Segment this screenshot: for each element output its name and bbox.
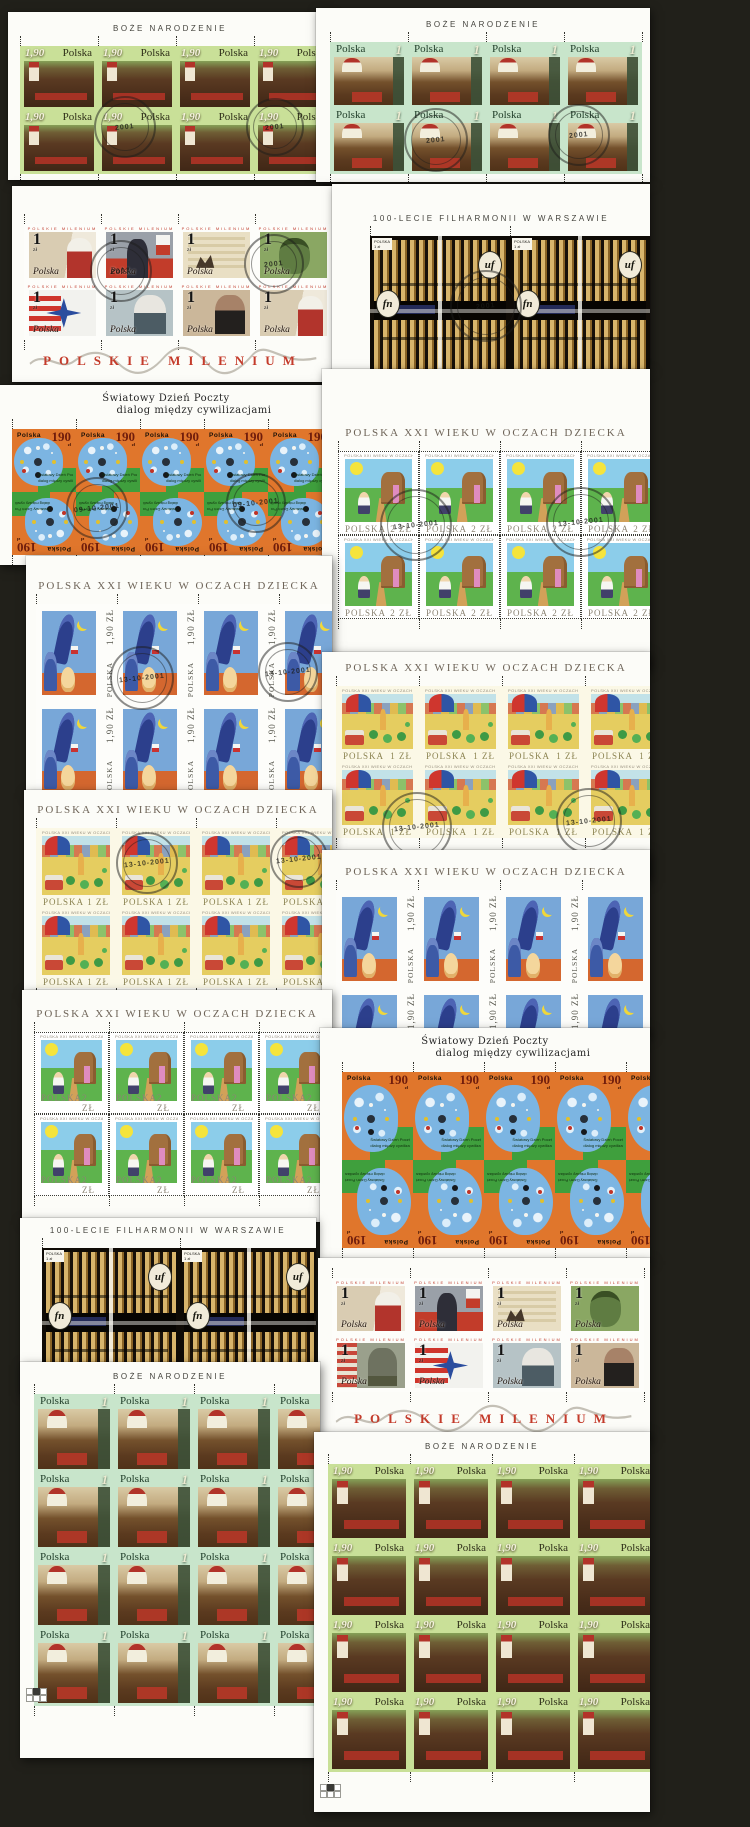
sheet-title: POLSKA XXI WIEKU W OCZACH DZIECKA (26, 578, 332, 594)
stamp-label-row: POLSKA2 ZŁ (116, 1093, 177, 1113)
country-label: POLSKA (426, 827, 467, 837)
denomination-label: 1 ZŁ (473, 751, 495, 761)
nativity-painting (568, 123, 638, 171)
flag-shape (71, 744, 78, 752)
blue-child-shape (344, 938, 357, 977)
stamp-x2: POLSKA XXI WIEKU W OCZACH DZIECKAPOLSKA2… (500, 535, 581, 619)
tree-column-shape (258, 1565, 270, 1625)
stamp-bn190: 1,90Polska (328, 1541, 410, 1618)
child-face-shape (526, 953, 540, 978)
caption-line1: Światowy Dzień Poczty (512, 1137, 552, 1143)
church-tower-shape (498, 124, 518, 138)
child-face-shape (444, 953, 458, 978)
stamp-mil: POLSKIE MILENIUM1złPolska (410, 1335, 488, 1392)
perforation-tick (42, 1238, 180, 1248)
sheet-milenium-right: POLSKIE MILENIUM1złPolskaPOLSKIE MILENIU… (318, 1258, 650, 1440)
flag-shape (314, 646, 321, 654)
child-face-shape (362, 953, 376, 978)
country-label: Polska (497, 1320, 523, 1330)
perforation-tick (198, 594, 279, 604)
path-shape (619, 582, 630, 606)
red-table-shape (430, 92, 459, 102)
red-table-shape (426, 1751, 481, 1760)
caption-line1: Światowy Dzień Poczty (207, 506, 243, 512)
church-tower-shape (501, 1635, 512, 1659)
denomination-label: 1 (474, 42, 481, 58)
stamp-micro-caption: POLSKIE MILENIUM (566, 1337, 644, 1342)
church-tower-shape (342, 124, 362, 138)
child-face-shape (223, 765, 237, 790)
perforation-tick (176, 174, 254, 180)
denomination-value: 1 (264, 292, 272, 305)
perforation-tick (486, 174, 564, 182)
red-table-shape (586, 92, 615, 102)
perforation-tick (419, 441, 500, 451)
perforation-tick (36, 818, 116, 828)
denomination-label: 1zł (187, 292, 195, 310)
denomination-label: 1 ZŁ (87, 897, 109, 907)
stamp-micro-caption: Światowy Dzień Pocztydialog między cywil… (370, 1137, 410, 1149)
tree-column-shape (178, 1565, 190, 1625)
blue-child-shape (287, 652, 300, 691)
stamp-micro-caption: Światowy Dzień Pocztydialog między cywil… (15, 500, 51, 512)
stamp-grid: POLSKA XXI WIEKU W OCZACH DZIECKAPOLSKA1… (36, 828, 332, 988)
country-label: Polska (336, 43, 365, 55)
perforation-tick (20, 36, 98, 46)
caption-line2: dialog między cywilizacjami (271, 500, 307, 506)
denomination-label: 190zł (347, 1230, 367, 1248)
denomination-label: 1,90 ZŁ (488, 895, 498, 931)
country-label: POLSKA (507, 524, 548, 534)
stamp-label-row: POLSKA1 ZŁ (592, 751, 650, 761)
denomination-label: 1,90 (333, 1465, 352, 1477)
giraffe-shape (380, 709, 386, 730)
stamp-sw: Polska190złŚwiatowy Dzień Pocztydialog m… (140, 492, 204, 555)
sheet-milenium-left: POLSKIE MILENIUM1złPolskaPOLSKIE MILENIU… (12, 186, 334, 382)
perforation-ticks (36, 818, 332, 828)
child-drawing-town (508, 694, 579, 749)
corner-label: POLSKA1 zł (44, 1250, 64, 1262)
red-bus-shape (428, 730, 447, 744)
denomination-label: 2 ZŁ (471, 524, 493, 534)
stamp-micro-caption: POLSKIE MILENIUM (332, 1280, 410, 1285)
country-label: Polska (560, 1075, 584, 1082)
denomination-label: 1zł (419, 1288, 427, 1306)
caption-line2: dialog między cywilizacjami (79, 500, 115, 506)
currency-label: zł (497, 1302, 505, 1306)
stamp-x2: POLSKA XXI WIEKU W OCZACH DZIECKAPOLSKA2… (109, 1032, 184, 1114)
country-label: POLSKA (406, 948, 415, 983)
nativity-painting (496, 1556, 570, 1615)
child-drawing-rocket (123, 709, 177, 793)
denomination-label: 190zł (116, 430, 136, 448)
denomination-label: 1,90 (579, 1465, 598, 1477)
caption-line1: Światowy Dzień Poczty (143, 506, 179, 512)
stamp-micro-caption: POLSKIE MILENIUM (101, 226, 178, 231)
denomination-label: 1 (102, 1550, 109, 1566)
denomination-label: 2 ZŁ (552, 524, 574, 534)
perforation-tick (626, 1248, 650, 1258)
country-label: Polska (239, 545, 263, 552)
perforation-tick (117, 594, 198, 604)
denomination-label: 190zł (52, 430, 72, 448)
country-label: Polska (40, 1551, 69, 1563)
stamp-bn1: Polska1 (114, 1394, 194, 1472)
pink-door-shape (234, 1066, 239, 1083)
stamp-label-row: POLSKA2 ZŁ (191, 1093, 252, 1113)
stamp-x2: POLSKA XXI WIEKU W OCZACH DZIECKAPOLSKA2… (500, 451, 581, 535)
stamp-sw: Polska190złŚwiatowy Dzień Pocztydialog m… (12, 429, 76, 492)
stamp-micro-caption: Światowy Dzień Pocztydialog między cywil… (629, 1171, 650, 1183)
country-label: Polska (492, 109, 521, 121)
pink-door-shape (474, 485, 480, 503)
country-label: POLSKA (123, 897, 164, 907)
caption-line2: dialog między cywilizacjami (512, 1143, 552, 1149)
caption-line1: Światowy Dzień Poczty (102, 472, 138, 478)
denomination-label: 1 ZŁ (247, 897, 269, 907)
country-label: Polska (200, 1629, 229, 1641)
giraffe-shape (546, 785, 552, 806)
stamp-mil: POLSKIE MILENIUM1złPolska (488, 1278, 566, 1335)
path-shape (457, 582, 468, 606)
country-label: POLSKA (588, 524, 629, 534)
nativity-painting (496, 1633, 570, 1692)
denomination-label: 1 ZŁ (247, 977, 269, 987)
church-tower-shape (47, 1644, 67, 1662)
country-label: POLSKA (203, 897, 244, 907)
stamp-micro-caption: POLSKIE MILENIUM (24, 284, 101, 289)
stamp-x2: POLSKA XXI WIEKU W OCZACH DZIECKAPOLSKA2… (184, 1032, 259, 1114)
child-figure-shape (128, 1072, 138, 1094)
pink-door-shape (393, 485, 399, 503)
registration-color-block (320, 1784, 341, 1798)
stamp-grid: POLSKIE MILENIUM1złPolskaPOLSKIE MILENIU… (24, 224, 334, 340)
caption-line1: Światowy Dzień Poczty (79, 506, 115, 512)
path-shape (457, 498, 468, 522)
stamp-micro-caption: POLSKIE MILENIUM (410, 1337, 488, 1342)
denomination-value: 1 (497, 1345, 505, 1358)
denomination-label: 2 ZŁ (390, 608, 412, 618)
stamp-micro-caption: POLSKIE MILENIUM (410, 1280, 488, 1285)
corner-label: POLSKA1 zł (512, 238, 532, 250)
country-label: Polska (375, 1696, 404, 1708)
stamp-collage: BOŻE NARODZENIE1,90Polska1,90Polska1,90P… (0, 0, 750, 1827)
church-tower-shape (501, 1712, 512, 1736)
red-bus-shape (511, 730, 530, 744)
pink-door-shape (636, 569, 642, 587)
giraffe-shape (158, 853, 164, 875)
stamp-label-row: POLSKA2 ZŁ (191, 1175, 252, 1195)
stamp-micro-caption: Światowy Dzień Pocztydialog między cywil… (79, 500, 115, 512)
child-figure-shape (439, 492, 450, 515)
stamp-label-row: POLSKA2 ZŁ (507, 524, 574, 534)
trees-shape (480, 732, 489, 741)
red-table-shape (344, 1674, 399, 1683)
red-table-shape (217, 1531, 247, 1543)
philharmonic-monogram-left: fn (376, 290, 400, 318)
stamp-bn1: Polska1 (564, 42, 642, 108)
country-label: Polska (457, 1542, 486, 1554)
flag-shape (71, 646, 78, 654)
stamp-bn190: 1,90Polska (98, 46, 176, 110)
stamp-micro-caption: POLSKA XXI WIEKU W OCZACH DZIECKA (506, 537, 575, 542)
country-label: Polska (17, 432, 41, 439)
caption-line2: dialog między cywilizacjami (345, 1171, 385, 1177)
blue-child-shape (508, 938, 521, 977)
tree-column-shape (258, 1409, 270, 1469)
perforation-tick (500, 880, 582, 890)
perforation-tick (410, 1772, 492, 1782)
child-drawing-rocket (506, 897, 561, 981)
stamp-micro-caption: POLSKA XXI WIEKU W OCZACH DZIECKA (40, 1034, 103, 1039)
currency-label: zł (419, 1302, 427, 1306)
country-label: POLSKA (588, 608, 629, 618)
stamp-micro-caption: POLSKIE MILENIUM (332, 1337, 410, 1342)
denomination-label: 190zł (180, 430, 200, 448)
country-label: Polska (209, 432, 233, 439)
nativity-painting (118, 1409, 190, 1469)
child-drawing-town (591, 770, 650, 825)
stamp-bn190: 1,90Polska (328, 1695, 410, 1772)
blue-child-shape (44, 652, 57, 691)
stamp-label-row: POLSKA2 ZŁ (41, 1175, 102, 1195)
red-bus-shape (511, 806, 530, 820)
flag-shape (454, 932, 461, 940)
country-label: Polska (110, 325, 136, 335)
denomination-label: 1,90 (259, 111, 278, 123)
giraffe-shape (629, 709, 635, 730)
denomination-label: 1 ZŁ (639, 827, 650, 837)
perforation-ticks (20, 174, 332, 180)
country-label: POLSKA (191, 1175, 232, 1195)
stamp-micro-caption: POLSKA XXI WIEKU W OCZACH DZIECKA (425, 764, 496, 769)
country-label: Polska (570, 109, 599, 121)
caption-line1: Światowy Dzień Poczty (558, 1177, 598, 1183)
red-table-shape (508, 92, 537, 102)
stamp-x1: POLSKA XXI WIEKU W OCZACH DZIECKAPOLSKA1… (585, 686, 650, 762)
perforation-tick (510, 226, 650, 236)
perforation-tick (410, 1454, 492, 1464)
country-label: Polska (280, 1395, 309, 1407)
stamp-bn190: 1,90Polska (574, 1464, 650, 1541)
stamp-micro-caption: POLSKIE MILENIUM (178, 284, 255, 289)
child-drawing-house (345, 459, 412, 522)
nativity-painting (414, 1556, 488, 1615)
denomination-label: 1,90 ZŁ (186, 609, 196, 645)
perforation-tick (34, 1196, 109, 1206)
church-tower-shape (342, 58, 362, 72)
perforation-tick (184, 1196, 259, 1206)
church-tower-shape (337, 1558, 348, 1582)
denomination-label: 1zł (33, 292, 41, 310)
trees-shape (94, 878, 103, 887)
caption-line1: Światowy Dzień Poczty (15, 506, 51, 512)
path-shape (619, 498, 630, 522)
country-label: Polska (570, 43, 599, 55)
stamp-label-row: POLSKA2 ZŁ (266, 1093, 327, 1113)
country-label: Polska (539, 1696, 568, 1708)
denomination-label: 1 (182, 1628, 189, 1644)
country-label: POLSKA (283, 977, 324, 987)
stamp-mil: POLSKIE MILENIUM1złPolska (101, 282, 178, 340)
sheet-children-190-left: POLSKA XXI WIEKU W OCZACH DZIECKA1,90 ZŁ… (26, 556, 332, 796)
nativity-painting (490, 57, 560, 105)
stamp-rk: 1,90 ZŁPOLSKA (117, 604, 198, 702)
stamp-grid: POLSKA XXI WIEKU W OCZACH DZIECKAPOLSKA1… (336, 686, 650, 838)
stamp-sw: Polska190złŚwiatowy Dzień Pocztydialog m… (555, 1072, 626, 1160)
stamp-micro-caption: POLSKIE MILENIUM (178, 226, 255, 231)
nativity-painting (102, 125, 172, 171)
perforation-tick (492, 1772, 574, 1782)
nativity-painting (578, 1479, 650, 1538)
denomination-value: 190 (347, 1234, 367, 1247)
stamp-label-row: POLSKA2 ZŁ (426, 608, 493, 618)
sheet-title: POLSKA XXI WIEKU W OCZACH DZIECKA (322, 425, 650, 441)
pink-door-shape (309, 1066, 314, 1083)
giraffe-shape (158, 933, 164, 955)
denomination-label: 1 zł (514, 244, 530, 249)
country-label: Polska (264, 267, 290, 277)
child-drawing-rocket (342, 897, 397, 981)
nativity-painting (578, 1710, 650, 1769)
child-drawing-town (122, 836, 190, 895)
currency-label: zł (110, 248, 118, 252)
country-label: Polska (120, 1473, 149, 1485)
country-label: Polska (497, 1377, 523, 1387)
perforation-ticks (12, 419, 332, 429)
country-label: Polska (280, 1551, 309, 1563)
country-label: Polska (418, 1075, 442, 1082)
denomination-value: 1 (264, 234, 272, 247)
perforation-tick (279, 594, 332, 604)
stamp-bn190: 1,90Polska (492, 1618, 574, 1695)
path-shape (376, 582, 387, 606)
perforation-tick (488, 1392, 566, 1402)
stamp-rk: 1,90 ZŁPOLSKA (418, 890, 500, 988)
church-tower-shape (583, 1712, 594, 1736)
denomination-label: 1 (182, 1472, 189, 1488)
country-label: Polska (539, 1542, 568, 1554)
stamp-bn190: 1,90Polska (20, 110, 98, 174)
country-label: Polska (621, 1465, 650, 1477)
stamp-rk: 1,90 ZŁPOLSKA (336, 890, 418, 988)
stamp-mil: POLSKIE MILENIUM1złPolska (178, 282, 255, 340)
church-tower-shape (287, 1566, 307, 1584)
stamp-micro-caption: POLSKA XXI WIEKU W OCZACH DZIECKA (190, 1034, 253, 1039)
nativity-painting (180, 61, 250, 107)
stamp-x1: POLSKA XXI WIEKU W OCZACH DZIECKAPOLSKA1… (36, 828, 116, 908)
denomination-value: 1 (497, 1288, 505, 1301)
nativity-painting (414, 1479, 488, 1538)
child-drawing-rocket (42, 709, 96, 793)
perforation-tick (109, 1196, 184, 1206)
country-label: POLSKA (41, 1093, 82, 1113)
tree-column-shape (178, 1487, 190, 1547)
denomination-value: 1 (187, 234, 195, 247)
country-label: POLSKA (186, 662, 195, 697)
stamp-bn190: 1,90Polska (492, 1695, 574, 1772)
red-table-shape (217, 1609, 247, 1621)
stamp-bn1: Polska1 (408, 42, 486, 108)
country-label: Polska (110, 267, 136, 277)
stamp-micro-caption: POLSKA XXI WIEKU W OCZACH DZIECKA (508, 764, 579, 769)
trees-shape (94, 958, 103, 967)
child-drawing-house (426, 543, 493, 606)
stamp-sw: Polska190złŚwiatowy Dzień Pocztydialog m… (484, 1160, 555, 1248)
stamp-x1: POLSKA XXI WIEKU W OCZACH DZIECKAPOLSKA1… (502, 686, 585, 762)
country-label: Polska (526, 1238, 550, 1245)
nativity-painting (24, 125, 94, 171)
child-face-shape (608, 953, 622, 978)
denomination-label: 190zł (418, 1230, 438, 1248)
denomination-label: 2 ZŁ (232, 1093, 252, 1113)
philharmonic-monogram-right: uf (286, 1263, 310, 1291)
tree-column-shape (258, 1487, 270, 1547)
stamp-x2: POLSKA XXI WIEKU W OCZACH DZIECKAPOLSKA2… (34, 1114, 109, 1196)
sheet-world-post-day-left: Światowy Dzień Pocztydialog między cywil… (0, 385, 332, 565)
denomination-value: 190 (631, 1234, 650, 1247)
giraffe-shape (238, 853, 244, 875)
denomination-value: 190 (81, 541, 101, 554)
child-drawing-town (122, 916, 190, 975)
stamp-micro-caption: Światowy Dzień Pocztydialog między cywil… (102, 472, 138, 484)
stamp-label-row: POLSKA2 ZŁ (345, 608, 412, 618)
red-table-shape (508, 1520, 563, 1529)
denomination-value: 1 (33, 234, 41, 247)
stamp-micro-caption: POLSKIE MILENIUM (101, 284, 178, 289)
stamp-bn1: Polska1 (486, 42, 564, 108)
red-table-shape (430, 158, 459, 168)
perforation-tick (642, 174, 643, 182)
stamp-rk: 1,90 ZŁPOLSKA (198, 702, 279, 796)
country-label: Polska (384, 1238, 408, 1245)
stamp-micro-caption: POLSKA XXI WIEKU W OCZACH DZIECKA (202, 830, 270, 835)
country-label: POLSKA (123, 977, 164, 987)
denomination-label: 1 ZŁ (556, 751, 578, 761)
currency-label: zł (187, 248, 195, 252)
child-drawing-town (42, 916, 110, 975)
denomination-label: 1zł (264, 292, 272, 310)
country-label: POLSKA (488, 948, 497, 983)
stamp-micro-caption: POLSKA XXI WIEKU W OCZACH DZIECKA (591, 688, 650, 693)
denomination-label: 190zł (273, 537, 293, 555)
perforation-tick (484, 1062, 555, 1072)
stamp-grid: 1,90Polska1,90Polska1,90Polska1,90Polska… (20, 46, 332, 174)
country-label: Polska (575, 1320, 601, 1330)
stamp-mil: POLSKIE MILENIUM1złPolska (178, 224, 255, 282)
stamp-x1: POLSKA XXI WIEKU W OCZACH DZIECKAPOLSKA1… (502, 762, 585, 838)
flag-shape (152, 744, 159, 752)
stamp-label-row: POLSKA2 ZŁ (426, 524, 493, 534)
stamp-mil: POLSKIE MILENIUM1złPolska (24, 282, 101, 340)
denomination-label: 190zł (560, 1230, 580, 1248)
stamp-bn190: 1,90Polska (176, 46, 254, 110)
denomination-value: 190 (273, 541, 293, 554)
perforation-tick (342, 1248, 413, 1258)
stamp-bn190: 1,90Polska (410, 1695, 492, 1772)
perforation-tick (502, 838, 585, 848)
church-tower-shape (29, 62, 40, 80)
stamp-micro-caption: POLSKA XXI WIEKU W OCZACH DZIECKA (122, 830, 190, 835)
red-table-shape (217, 1453, 247, 1465)
denomination-label: 1 ZŁ (390, 827, 412, 837)
perforation-tick (332, 1268, 410, 1278)
perforation-ticks (338, 441, 650, 451)
perforation-ticks (342, 1062, 650, 1072)
denomination-label: 1zł (419, 1345, 427, 1363)
caption-line2: dialog między cywilizacjami (230, 478, 266, 484)
perforation-tick (585, 838, 650, 848)
